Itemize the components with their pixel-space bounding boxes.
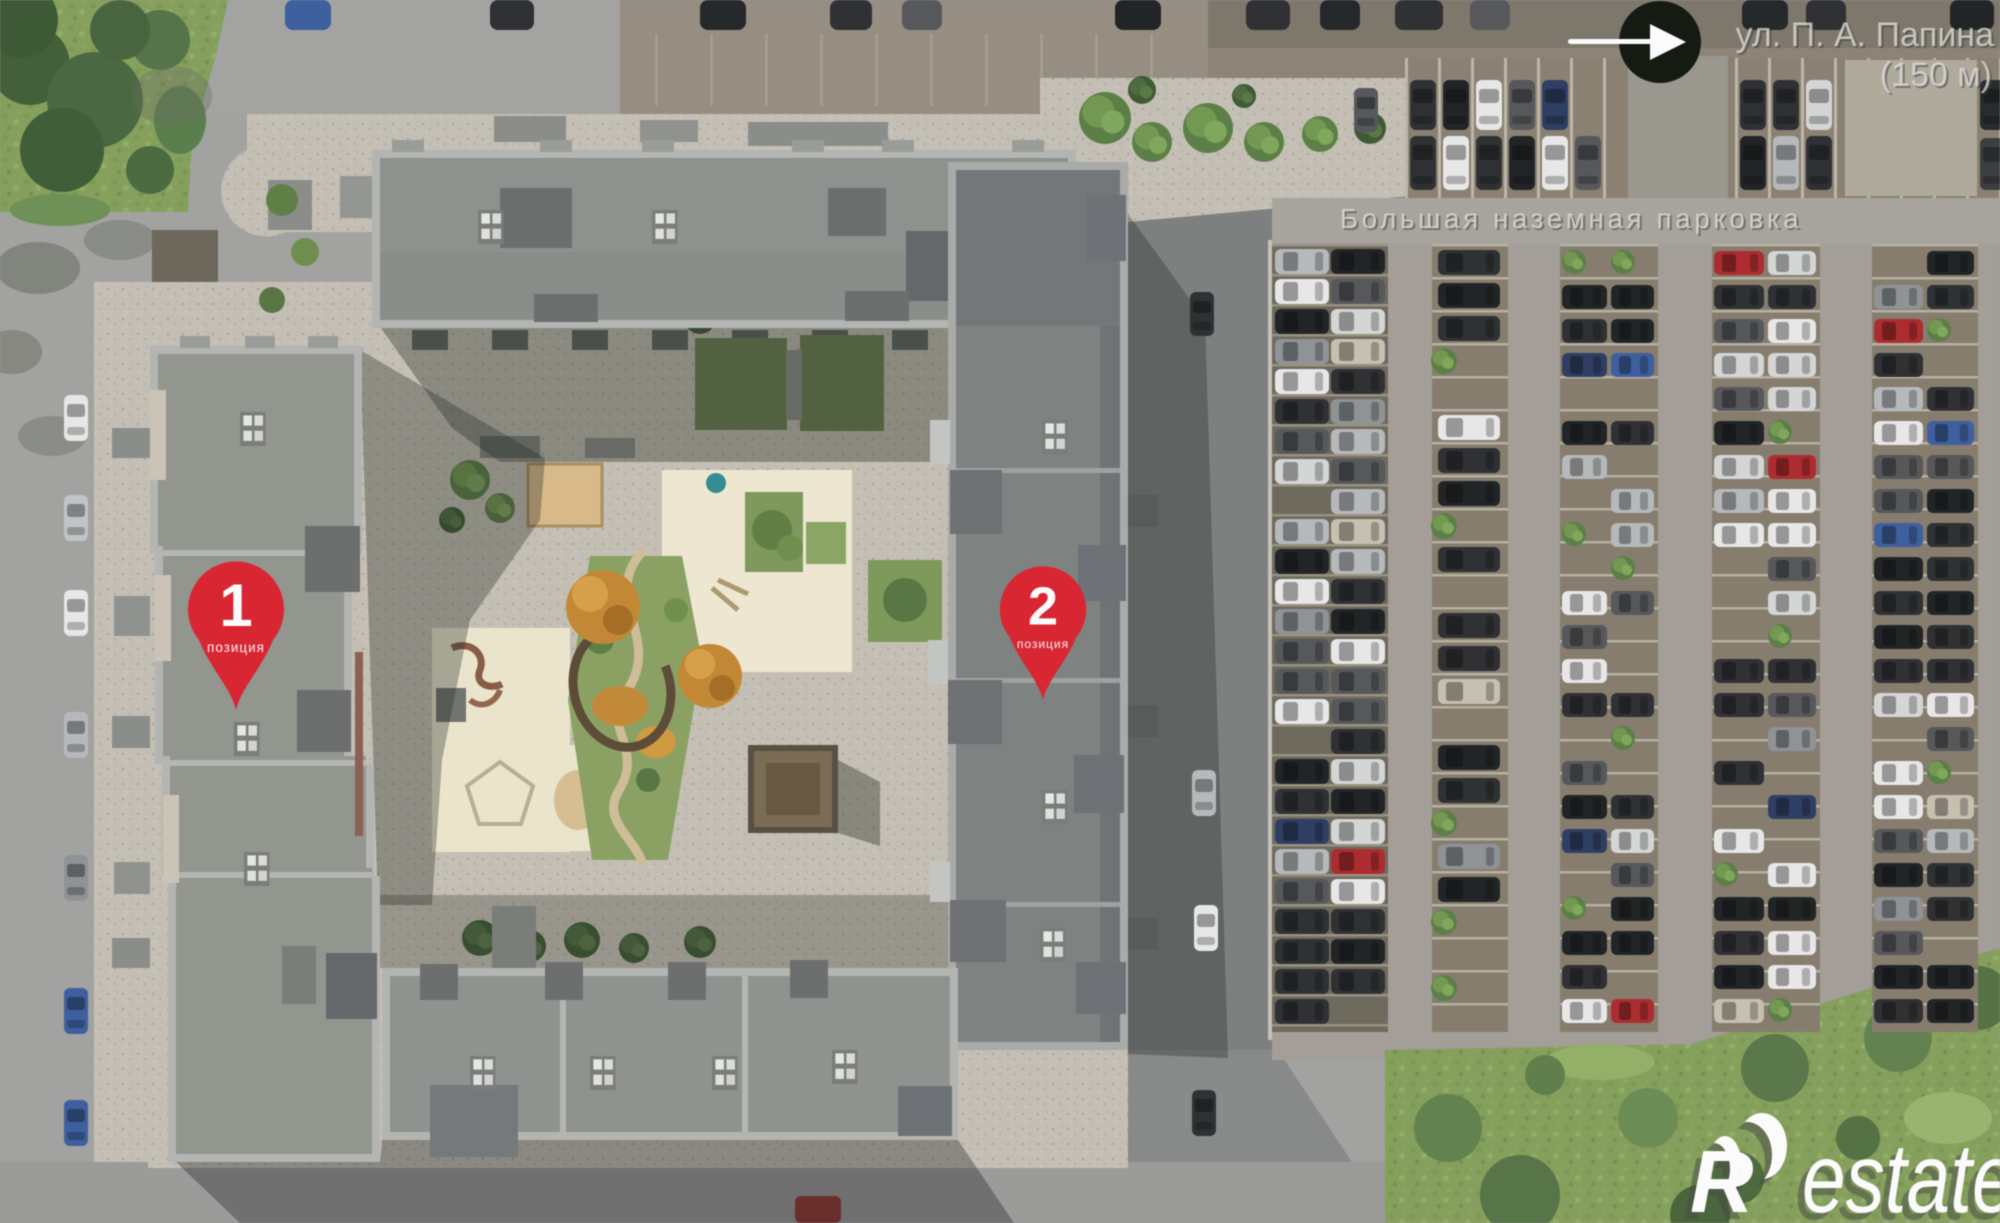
svg-text:estate: estate	[1802, 1124, 2000, 1223]
svg-text:позиция: позиция	[1017, 637, 1069, 651]
svg-text:1: 1	[219, 572, 252, 639]
svg-text:(150 м): (150 м)	[1880, 56, 1992, 94]
svg-text:2: 2	[1028, 576, 1058, 636]
svg-text:ул. П. А. Папина: ул. П. А. Папина	[1736, 16, 1994, 54]
svg-text:позиция: позиция	[207, 640, 265, 655]
svg-text:Большая наземная парковка: Большая наземная парковка	[1340, 203, 1803, 234]
